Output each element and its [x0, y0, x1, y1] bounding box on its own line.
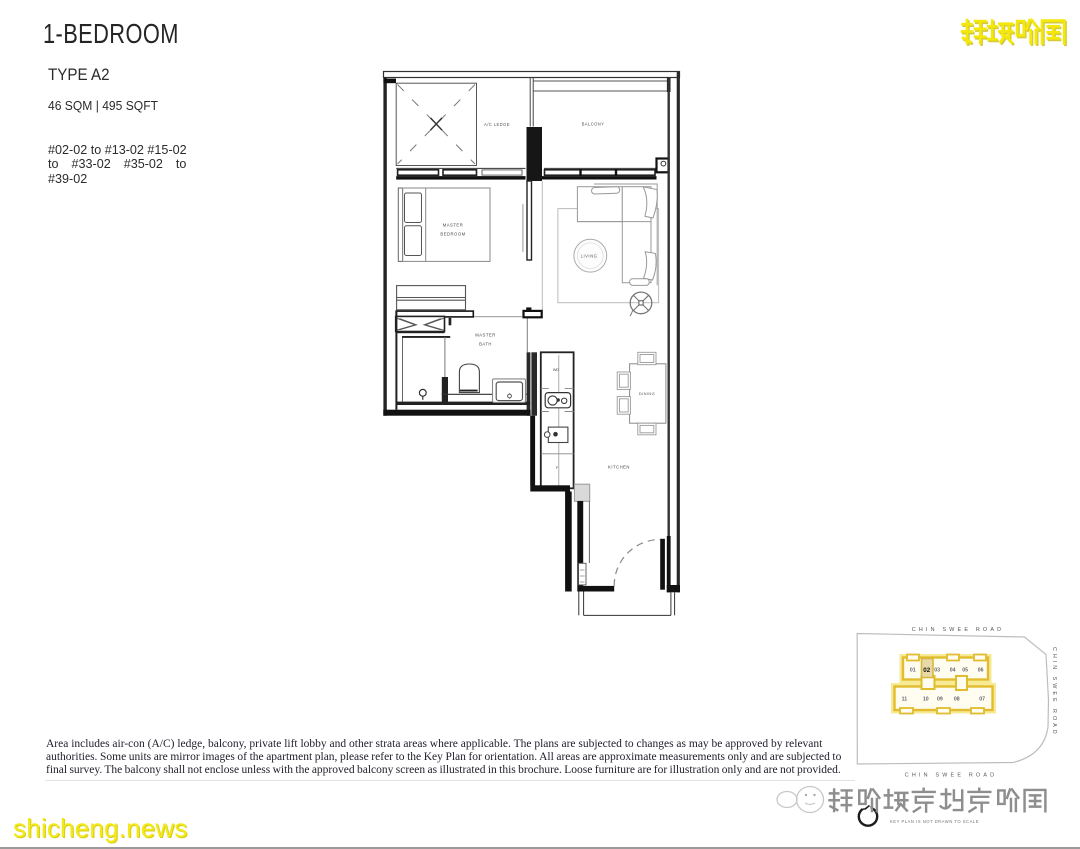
- svg-text:07: 07: [979, 697, 985, 703]
- svg-text:11: 11: [902, 697, 908, 703]
- svg-text:10: 10: [923, 697, 929, 703]
- svg-text:CHIN SWEE ROAD: CHIN SWEE ROAD: [912, 627, 1004, 633]
- svg-text:09: 09: [937, 697, 943, 703]
- svg-text:03: 03: [934, 668, 940, 674]
- svg-text:A/C LEDGE: A/C LEDGE: [484, 122, 510, 127]
- svg-text:KITCHEN: KITCHEN: [608, 464, 630, 469]
- svg-text:02: 02: [923, 667, 930, 674]
- svg-text:LIVING: LIVING: [581, 253, 598, 258]
- svg-text:CHIN SWEE ROAD: CHIN SWEE ROAD: [1051, 647, 1057, 737]
- svg-text:MASTER: MASTER: [475, 332, 495, 337]
- svg-text:01: 01: [910, 668, 916, 674]
- svg-text:06: 06: [978, 668, 984, 674]
- svg-text:DINING: DINING: [639, 391, 655, 396]
- svg-text:WD: WD: [553, 368, 560, 372]
- svg-text:08: 08: [954, 697, 960, 703]
- svg-text:MASTER: MASTER: [443, 222, 463, 227]
- svg-text:04: 04: [950, 668, 956, 674]
- svg-text:BALCONY: BALCONY: [582, 122, 605, 127]
- svg-text:CHIN SWEE ROAD: CHIN SWEE ROAD: [905, 773, 997, 779]
- svg-text:KEY PLAN IS NOT DRAWN TO SCALE: KEY PLAN IS NOT DRAWN TO SCALE: [890, 819, 979, 824]
- svg-text:BATH: BATH: [479, 342, 492, 347]
- svg-text:BEDROOM: BEDROOM: [440, 232, 465, 237]
- svg-text:05: 05: [962, 668, 968, 674]
